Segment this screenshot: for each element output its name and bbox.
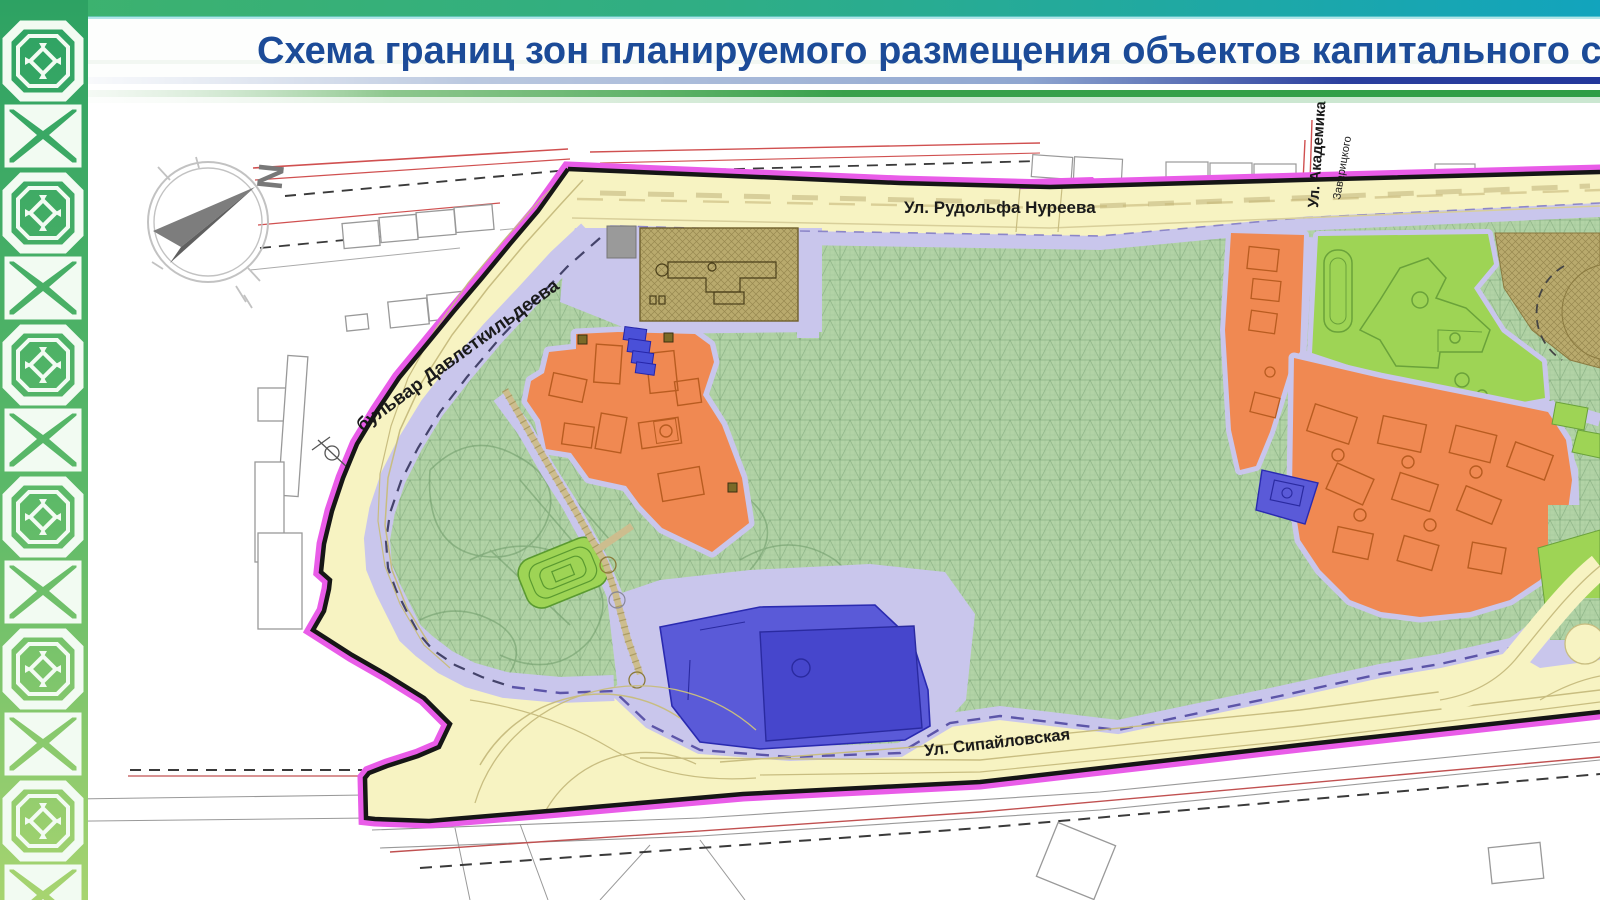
svg-text:Схема границ зон планируемого: Схема границ зон планируемого размещения… <box>257 30 1600 72</box>
svg-text:N: N <box>249 161 292 191</box>
svg-text:Ул. Рудольфа Нуреева: Ул. Рудольфа Нуреева <box>904 198 1096 217</box>
